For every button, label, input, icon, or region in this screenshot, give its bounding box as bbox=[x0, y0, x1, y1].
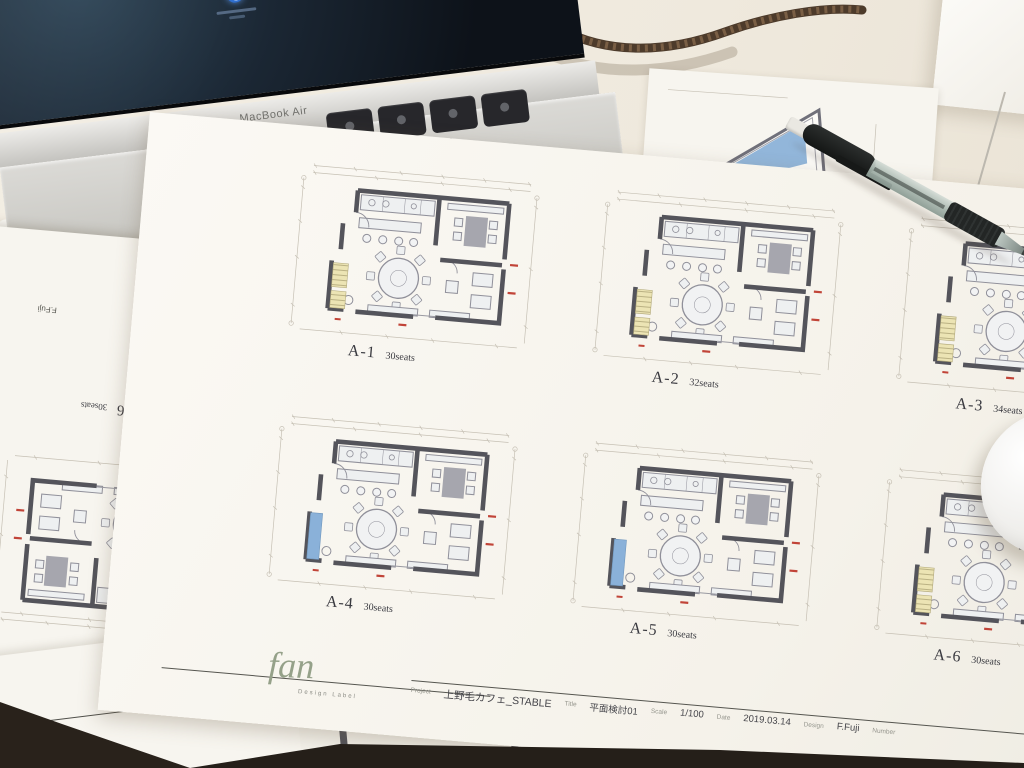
floor-plan-a2: A-2 32seats bbox=[583, 182, 849, 403]
logo-subtext: Design Label bbox=[298, 689, 357, 700]
volume-up-key bbox=[429, 95, 479, 133]
design-label: Design bbox=[803, 718, 824, 730]
main-sheet: A-1 30seats A-2 32seats bbox=[98, 112, 1024, 768]
plan-seats: 30seats bbox=[363, 602, 393, 616]
floor-plan-a5: A-5 30seats bbox=[561, 433, 827, 654]
plan-name: A-3 bbox=[955, 395, 984, 414]
desk-scene: MacBook Air A-6 30seats bbox=[0, 0, 1024, 768]
plan-seats: 34seats bbox=[993, 404, 1023, 418]
logo-script: fan bbox=[268, 644, 315, 688]
plan-name: A-6 bbox=[933, 646, 962, 665]
screen-app-icon bbox=[225, 0, 244, 4]
date-label: Date bbox=[716, 711, 731, 722]
plan-drawing bbox=[281, 155, 546, 356]
plan-label: A-6 30seats bbox=[933, 646, 1024, 680]
title-label: Title bbox=[564, 697, 577, 708]
plan-seats: 32seats bbox=[689, 377, 719, 391]
scale-label: Scale bbox=[651, 705, 668, 716]
date-value: 2019.03.14 bbox=[743, 713, 791, 728]
power-key bbox=[480, 89, 530, 127]
plan-seats: 30seats bbox=[667, 628, 697, 642]
plan-name: A-2 bbox=[651, 369, 680, 388]
number-label: Number bbox=[872, 724, 896, 736]
screen-app-caption-bar bbox=[229, 15, 245, 20]
under-designer: F.Fuji bbox=[37, 304, 57, 315]
design-value: F.Fuji bbox=[836, 721, 860, 734]
floor-plan-a4: A-4 30seats bbox=[257, 406, 523, 627]
plan-drawing bbox=[563, 433, 828, 634]
screen-app-caption-bar bbox=[216, 7, 256, 15]
title-value: 平面検討01 bbox=[589, 700, 639, 718]
plan-name: A-1 bbox=[347, 342, 376, 361]
plan-seats: 30seats bbox=[385, 350, 415, 364]
project-label: Project bbox=[410, 684, 431, 696]
plan-name: A-5 bbox=[629, 620, 658, 639]
under-plan-label: A-6 30seats bbox=[0, 390, 143, 421]
plan-seats: 30seats bbox=[971, 655, 1001, 669]
floor-plan-a1: A-1 30seats bbox=[279, 155, 545, 376]
plan-name: A-4 bbox=[325, 593, 354, 612]
white-box bbox=[932, 0, 1024, 119]
under-plan-seats: 30seats bbox=[80, 400, 107, 412]
plan-drawing bbox=[585, 182, 850, 383]
plan-drawing bbox=[259, 406, 524, 607]
project-value: 上野毛カフェ_STABLE bbox=[443, 687, 552, 711]
scale-value: 1/100 bbox=[680, 708, 705, 721]
